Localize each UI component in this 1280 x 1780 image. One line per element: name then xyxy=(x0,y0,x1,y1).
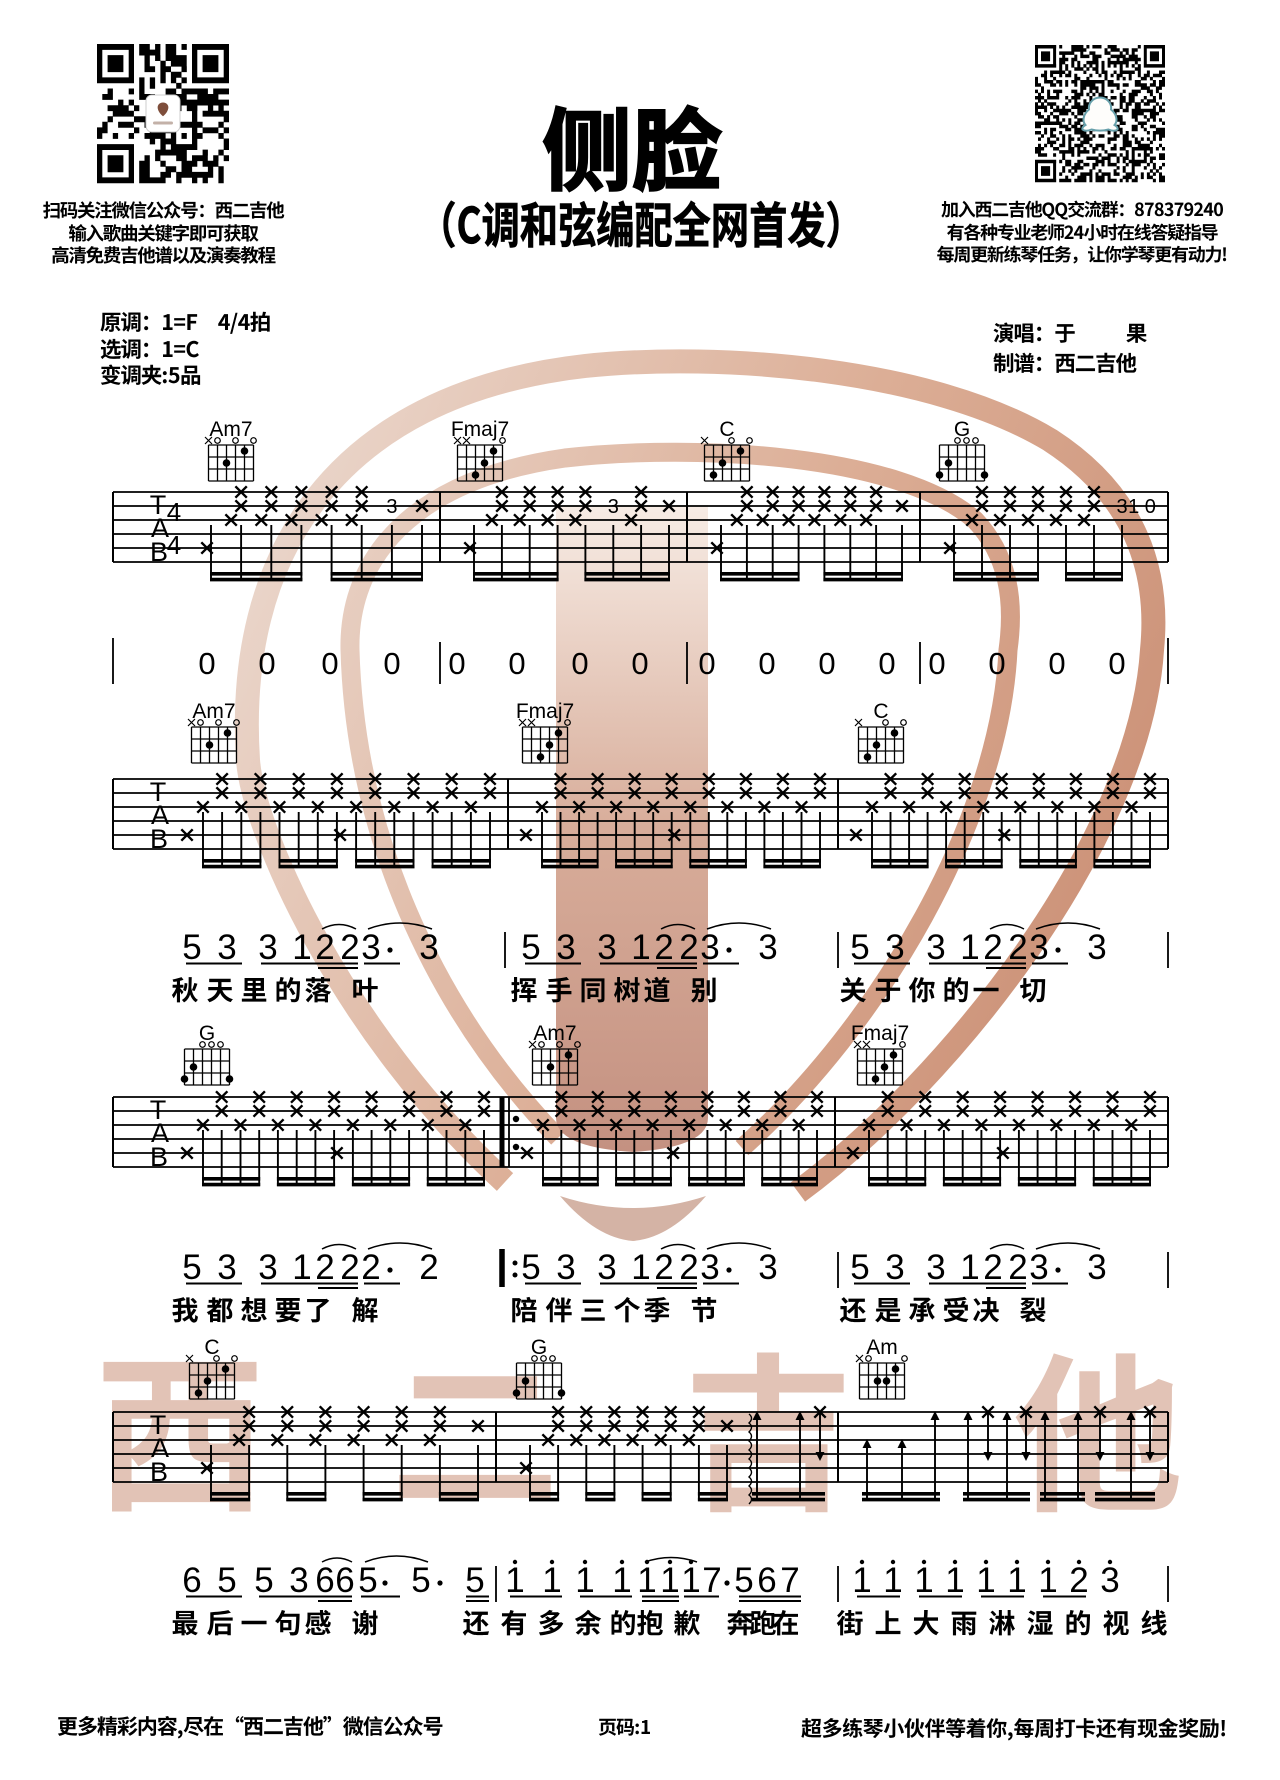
svg-text:1: 1 xyxy=(1007,1561,1026,1600)
svg-text:3: 3 xyxy=(608,496,619,518)
svg-text:1: 1 xyxy=(914,1561,933,1600)
svg-text:3: 3 xyxy=(1100,1561,1119,1600)
svg-text:1: 1 xyxy=(542,1561,561,1600)
svg-text:4: 4 xyxy=(167,530,181,560)
svg-text:0: 0 xyxy=(258,646,275,681)
svg-text:3: 3 xyxy=(1029,1248,1048,1287)
svg-text:0: 0 xyxy=(758,646,775,681)
svg-text:1: 1 xyxy=(631,1248,650,1287)
svg-text:1: 1 xyxy=(660,1561,679,1600)
svg-text:1: 1 xyxy=(681,1561,700,1600)
svg-text:5: 5 xyxy=(411,1561,430,1600)
svg-text:3: 3 xyxy=(1029,928,1048,967)
svg-text:2: 2 xyxy=(654,1248,673,1287)
svg-text:2: 2 xyxy=(340,928,359,967)
svg-text:3: 3 xyxy=(556,928,575,967)
svg-text:3: 3 xyxy=(1116,496,1127,518)
svg-text:2: 2 xyxy=(340,1248,359,1287)
svg-text:1: 1 xyxy=(612,1561,631,1600)
svg-text:Am: Am xyxy=(866,1336,898,1359)
svg-text:5: 5 xyxy=(254,1561,273,1600)
svg-text:3: 3 xyxy=(885,1248,904,1287)
svg-text:2: 2 xyxy=(1008,1248,1027,1287)
svg-text:2: 2 xyxy=(315,928,334,967)
svg-text:2: 2 xyxy=(361,1248,380,1287)
svg-text:Fmaj7: Fmaj7 xyxy=(516,700,574,723)
svg-text:1: 1 xyxy=(637,1561,656,1600)
svg-text:1: 1 xyxy=(976,1561,995,1600)
svg-text:3: 3 xyxy=(289,1561,308,1600)
svg-text:0: 0 xyxy=(508,646,525,681)
svg-text:3: 3 xyxy=(556,1248,575,1287)
svg-text:0: 0 xyxy=(448,646,465,681)
svg-text:1: 1 xyxy=(852,1561,871,1600)
svg-text:1: 1 xyxy=(960,928,979,967)
svg-text:3: 3 xyxy=(217,928,236,967)
svg-text:3: 3 xyxy=(258,1248,277,1287)
svg-text:0: 0 xyxy=(571,646,588,681)
svg-text:3: 3 xyxy=(926,1248,945,1287)
svg-text:5: 5 xyxy=(850,928,869,967)
svg-text:2: 2 xyxy=(1069,1561,1088,1600)
svg-text:5: 5 xyxy=(850,1248,869,1287)
svg-text:1: 1 xyxy=(292,928,311,967)
svg-text:3: 3 xyxy=(885,928,904,967)
svg-text:3: 3 xyxy=(1087,1248,1106,1287)
svg-text:5: 5 xyxy=(521,1248,540,1287)
svg-text:3: 3 xyxy=(758,1248,777,1287)
svg-text:1: 1 xyxy=(883,1561,902,1600)
svg-text:3: 3 xyxy=(1087,928,1106,967)
svg-text:4: 4 xyxy=(167,497,181,527)
svg-text:5: 5 xyxy=(521,928,540,967)
svg-text:0: 0 xyxy=(928,646,945,681)
svg-text:6: 6 xyxy=(315,1561,334,1600)
svg-text:1: 1 xyxy=(945,1561,964,1600)
svg-text:2: 2 xyxy=(983,928,1002,967)
svg-text:B: B xyxy=(150,1142,168,1172)
svg-text:3: 3 xyxy=(258,928,277,967)
svg-text:5: 5 xyxy=(465,1561,484,1600)
svg-text:0: 0 xyxy=(698,646,715,681)
svg-text:5: 5 xyxy=(734,1561,753,1600)
svg-text:2: 2 xyxy=(983,1248,1002,1287)
svg-text:5: 5 xyxy=(358,1561,377,1600)
svg-text:0: 0 xyxy=(1108,646,1125,681)
svg-text:2: 2 xyxy=(315,1248,334,1287)
svg-text:Fmaj7: Fmaj7 xyxy=(851,1022,909,1045)
svg-text:1: 1 xyxy=(631,928,650,967)
svg-text:3: 3 xyxy=(700,928,719,967)
svg-text:6: 6 xyxy=(757,1561,776,1600)
svg-text:B: B xyxy=(150,824,168,854)
svg-text:0: 0 xyxy=(383,646,400,681)
svg-text:3: 3 xyxy=(217,1248,236,1287)
svg-text:3: 3 xyxy=(758,928,777,967)
svg-text:1: 1 xyxy=(960,1248,979,1287)
svg-text:2: 2 xyxy=(679,1248,698,1287)
svg-text:1: 1 xyxy=(505,1561,524,1600)
svg-text:2: 2 xyxy=(654,928,673,967)
svg-text:B: B xyxy=(150,537,168,567)
svg-text:1: 1 xyxy=(292,1248,311,1287)
svg-text:7: 7 xyxy=(702,1561,721,1600)
svg-text:0: 0 xyxy=(988,646,1005,681)
svg-text:0: 0 xyxy=(631,646,648,681)
svg-text:3: 3 xyxy=(597,928,616,967)
svg-text:0: 0 xyxy=(321,646,338,681)
svg-text:3: 3 xyxy=(361,928,380,967)
svg-text:3: 3 xyxy=(926,928,945,967)
svg-text:Fmaj7: Fmaj7 xyxy=(451,418,509,441)
svg-text:0: 0 xyxy=(198,646,215,681)
svg-text:5: 5 xyxy=(182,1248,201,1287)
svg-text:6: 6 xyxy=(335,1561,354,1600)
svg-text:3: 3 xyxy=(419,928,438,967)
svg-text:B: B xyxy=(150,1457,168,1487)
svg-text:2: 2 xyxy=(1008,928,1027,967)
svg-text:2: 2 xyxy=(679,928,698,967)
svg-text:6: 6 xyxy=(182,1561,201,1600)
svg-text:2: 2 xyxy=(419,1248,438,1287)
svg-text:7: 7 xyxy=(780,1561,799,1600)
svg-text:3: 3 xyxy=(597,1248,616,1287)
svg-text:3: 3 xyxy=(386,496,397,518)
svg-text:1: 1 xyxy=(1038,1561,1057,1600)
svg-text:3: 3 xyxy=(700,1248,719,1287)
svg-text:0: 0 xyxy=(818,646,835,681)
svg-text:5: 5 xyxy=(182,928,201,967)
svg-text:1 0: 1 0 xyxy=(1128,496,1156,518)
svg-text:1: 1 xyxy=(575,1561,594,1600)
svg-text:5: 5 xyxy=(217,1561,236,1600)
svg-text:0: 0 xyxy=(1048,646,1065,681)
svg-text:0: 0 xyxy=(878,646,895,681)
